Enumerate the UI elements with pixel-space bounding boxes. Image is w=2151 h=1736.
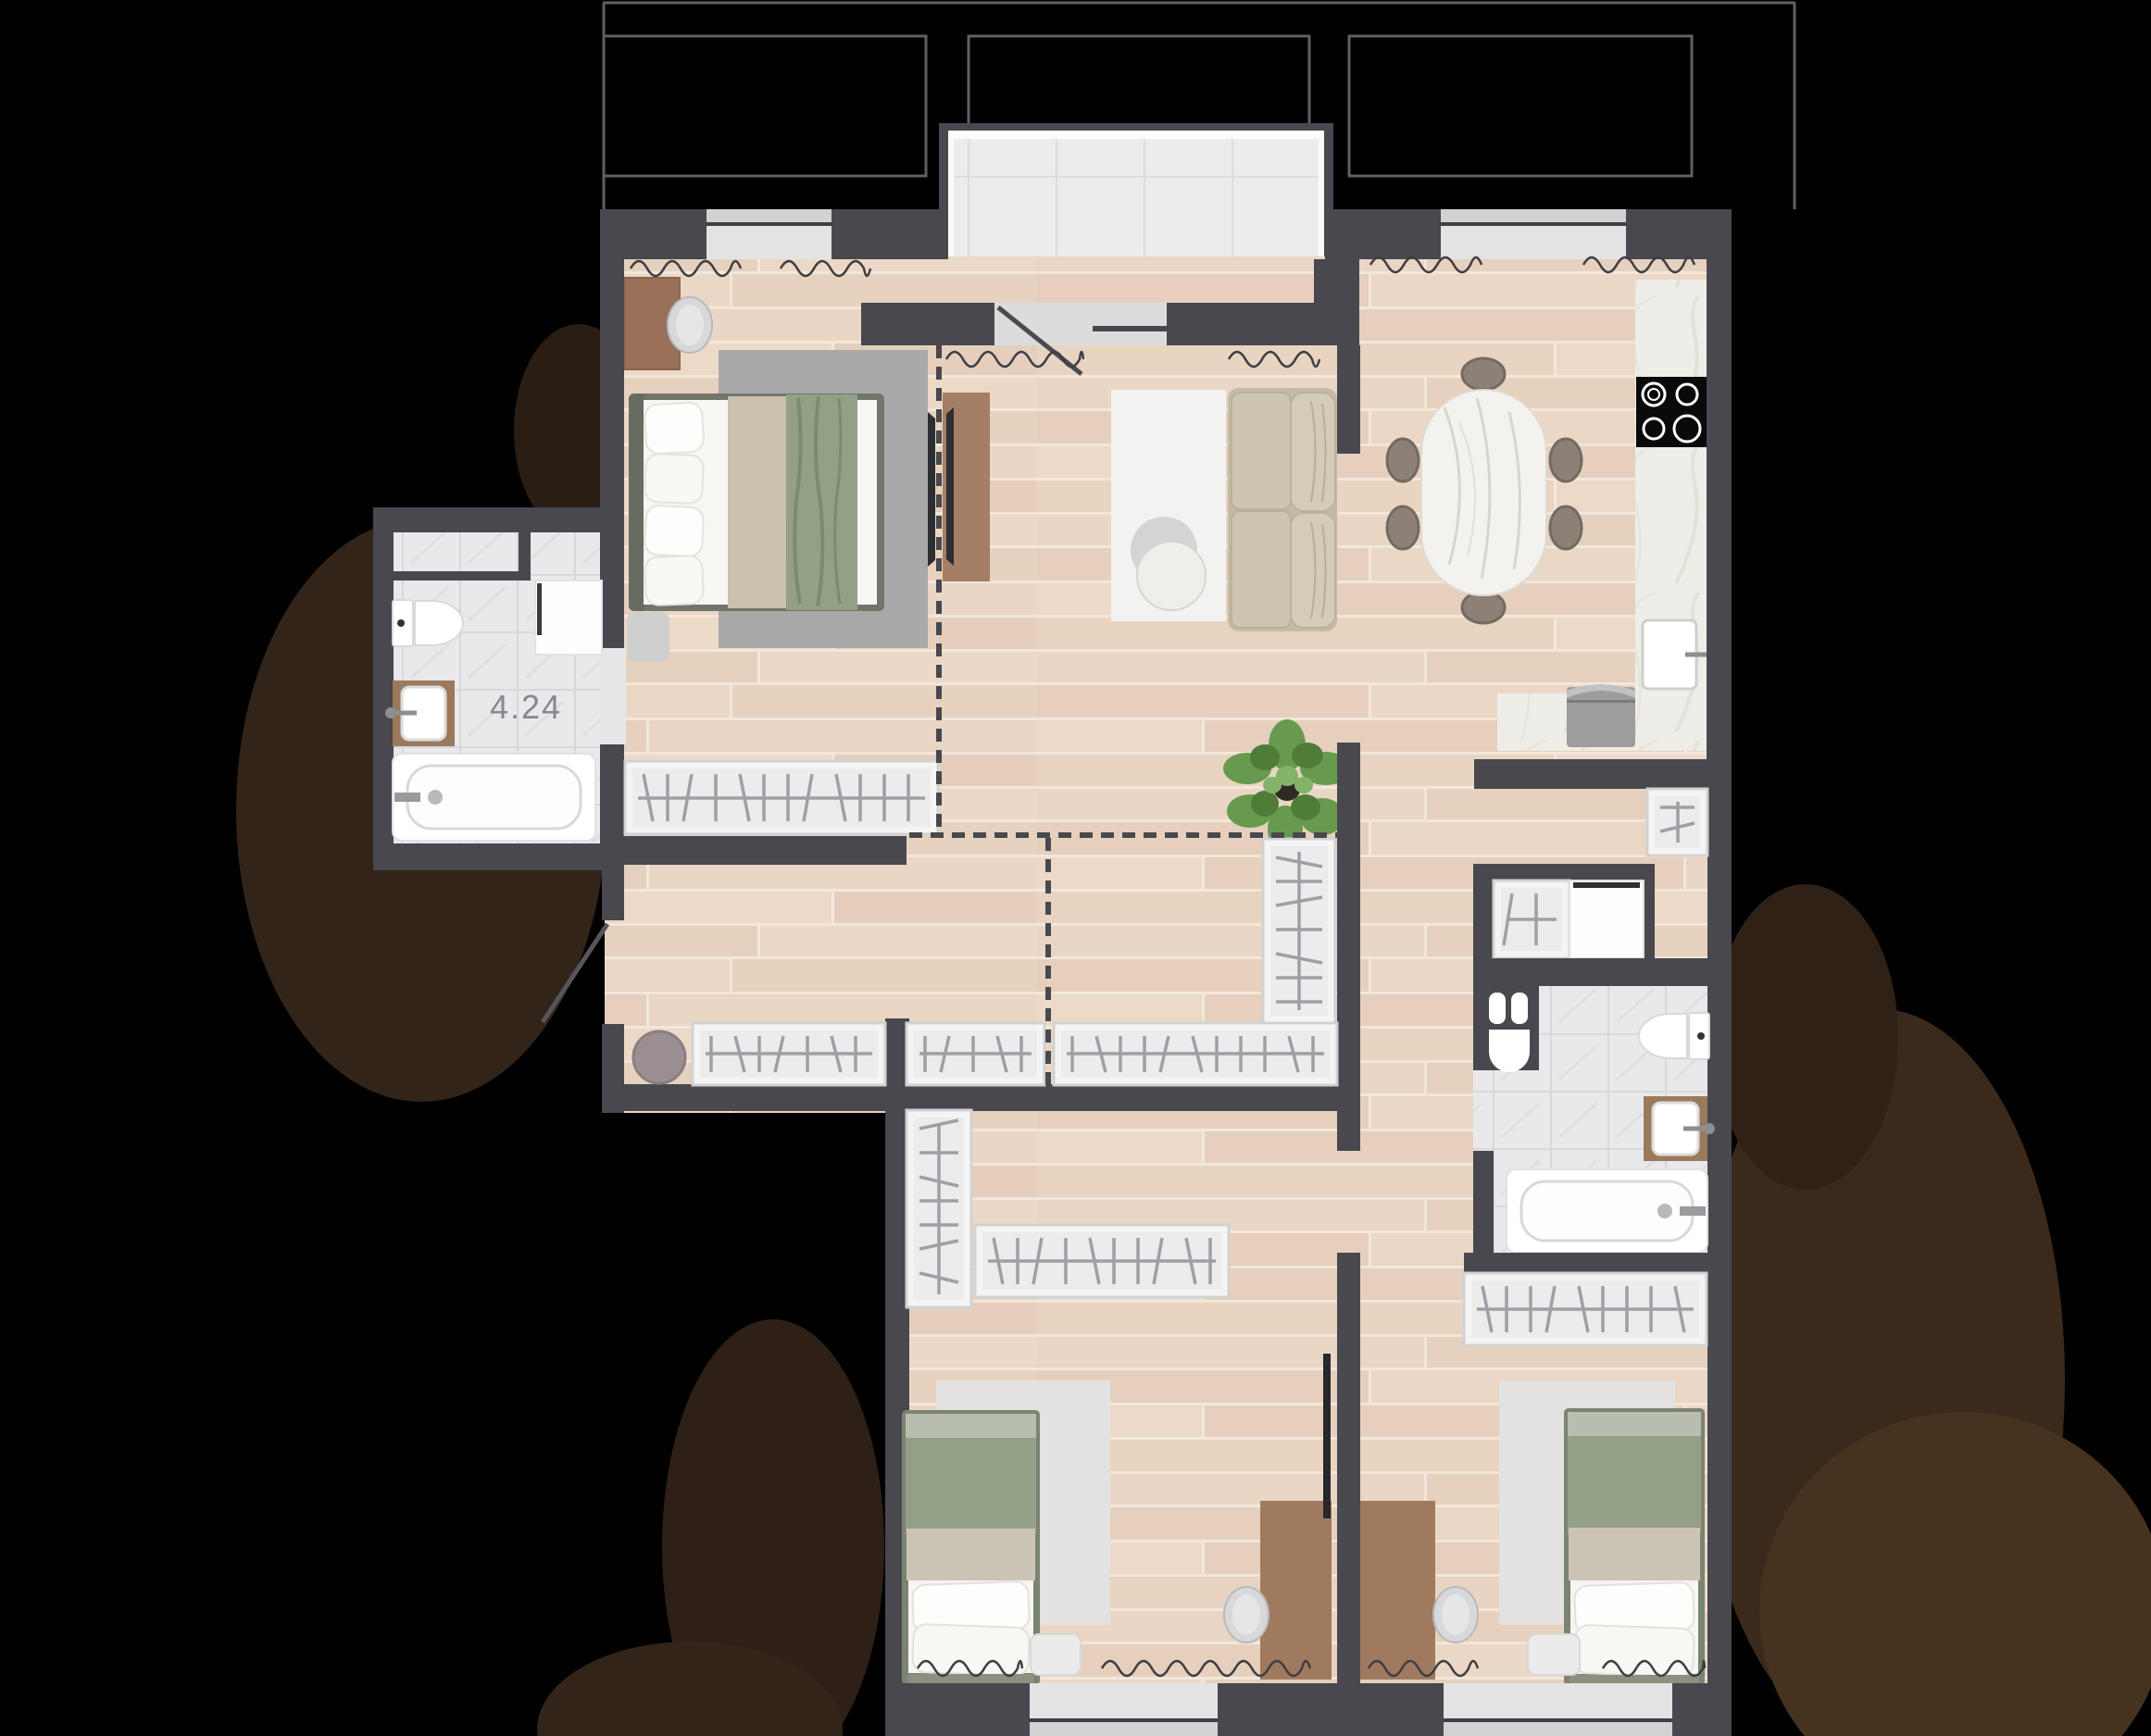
svg-text:4.24: 4.24 (490, 688, 562, 726)
